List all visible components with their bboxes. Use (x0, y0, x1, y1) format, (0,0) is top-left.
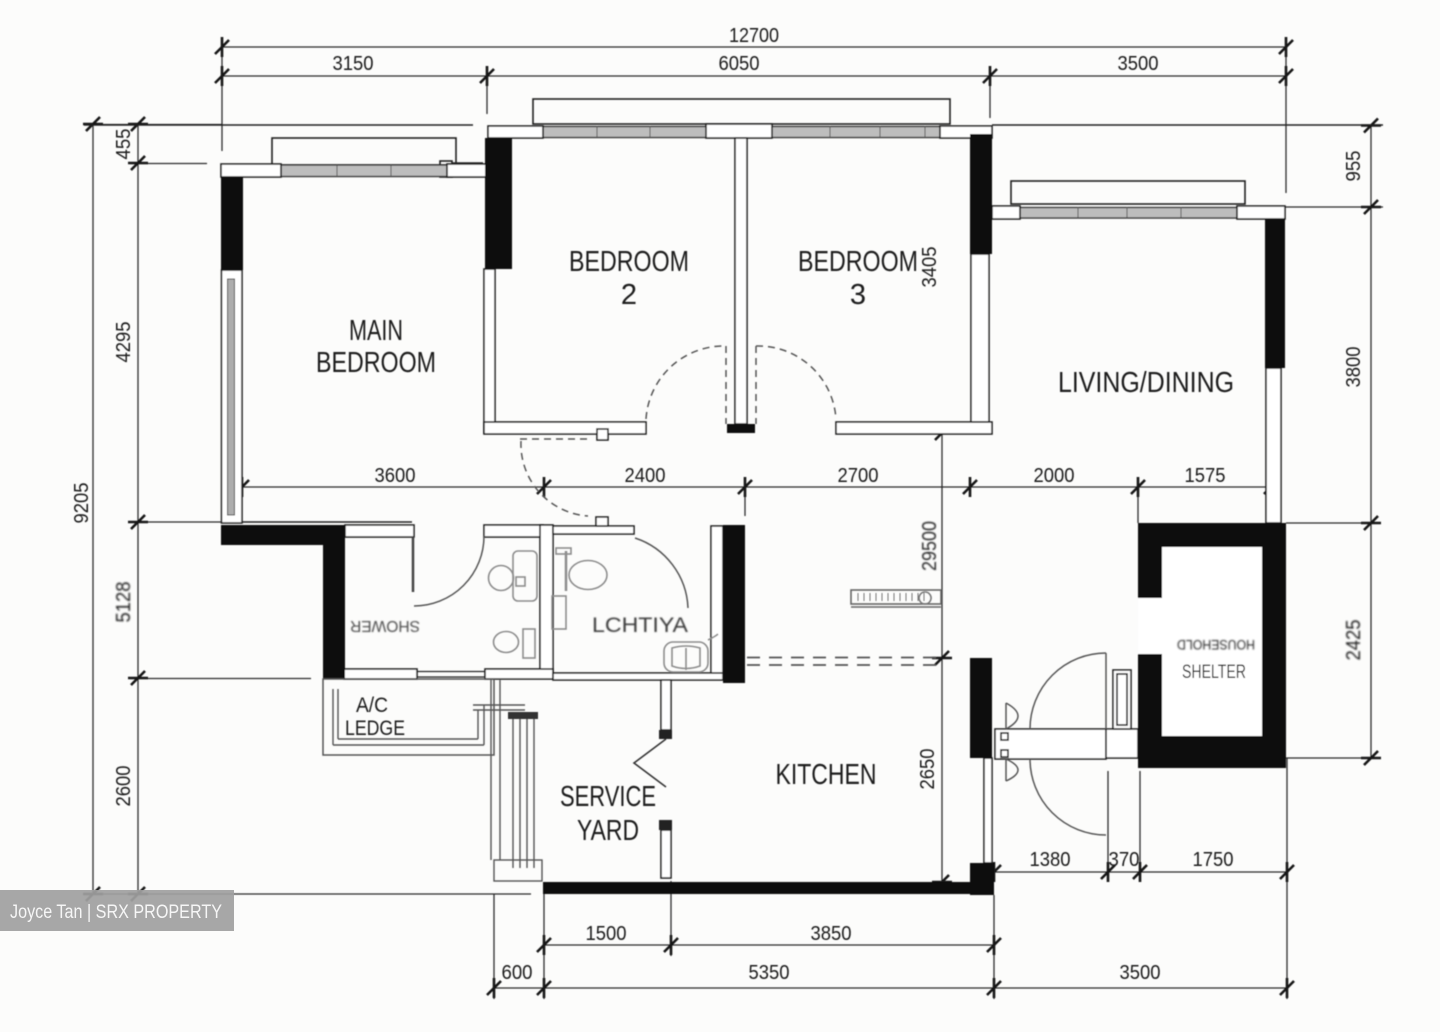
svg-text:3150: 3150 (333, 53, 374, 75)
svg-text:455: 455 (113, 129, 135, 160)
svg-text:3: 3 (850, 279, 866, 311)
svg-text:370: 370 (1109, 849, 1140, 871)
svg-text:1575: 1575 (1185, 465, 1226, 487)
svg-text:29500: 29500 (919, 521, 941, 571)
svg-text:LIVING/DINING: LIVING/DINING (1058, 367, 1234, 399)
svg-text:2425: 2425 (1343, 620, 1365, 661)
svg-text:MAIN: MAIN (349, 315, 403, 347)
svg-text:2600: 2600 (113, 766, 135, 807)
svg-text:1380: 1380 (1030, 849, 1071, 871)
svg-text:2400: 2400 (625, 465, 666, 487)
svg-text:SERVICE: SERVICE (560, 781, 656, 813)
svg-text:3500: 3500 (1118, 53, 1159, 75)
svg-text:3405: 3405 (919, 247, 941, 288)
svg-text:9205: 9205 (71, 483, 93, 524)
svg-text:4295: 4295 (113, 322, 135, 363)
svg-text:3500: 3500 (1120, 962, 1161, 984)
svg-text:SHOWER: SHOWER (350, 617, 420, 634)
svg-text:955: 955 (1343, 151, 1365, 182)
svg-text:1500: 1500 (586, 923, 627, 945)
svg-text:3600: 3600 (375, 465, 416, 487)
svg-text:6050: 6050 (719, 53, 760, 75)
svg-text:Joyce Tan | SRX PROPERTY: Joyce Tan | SRX PROPERTY (10, 902, 222, 923)
svg-text:5350: 5350 (749, 962, 790, 984)
svg-text:BEDROOM: BEDROOM (316, 347, 436, 379)
svg-text:SHELTER: SHELTER (1182, 662, 1246, 683)
svg-text:3800: 3800 (1343, 347, 1365, 388)
svg-text:A/C: A/C (356, 694, 388, 717)
svg-text:2650: 2650 (917, 749, 939, 790)
svg-text:HOUSEHOLD: HOUSEHOLD (1177, 637, 1255, 652)
svg-text:YARD: YARD (577, 815, 639, 847)
svg-text:LEDGE: LEDGE (345, 717, 405, 740)
svg-text:600: 600 (502, 962, 533, 984)
svg-text:5128: 5128 (113, 582, 135, 623)
svg-text:KITCHEN: KITCHEN (776, 759, 877, 791)
svg-text:2: 2 (621, 279, 637, 311)
svg-text:BEDROOM: BEDROOM (569, 246, 689, 278)
svg-text:BEDROOM: BEDROOM (798, 246, 918, 278)
svg-text:LCHTIYA: LCHTIYA (592, 614, 688, 637)
svg-text:2000: 2000 (1034, 465, 1075, 487)
svg-text:1750: 1750 (1193, 849, 1234, 871)
svg-text:3850: 3850 (811, 923, 852, 945)
svg-text:2700: 2700 (838, 465, 879, 487)
svg-text:12700: 12700 (729, 25, 779, 47)
